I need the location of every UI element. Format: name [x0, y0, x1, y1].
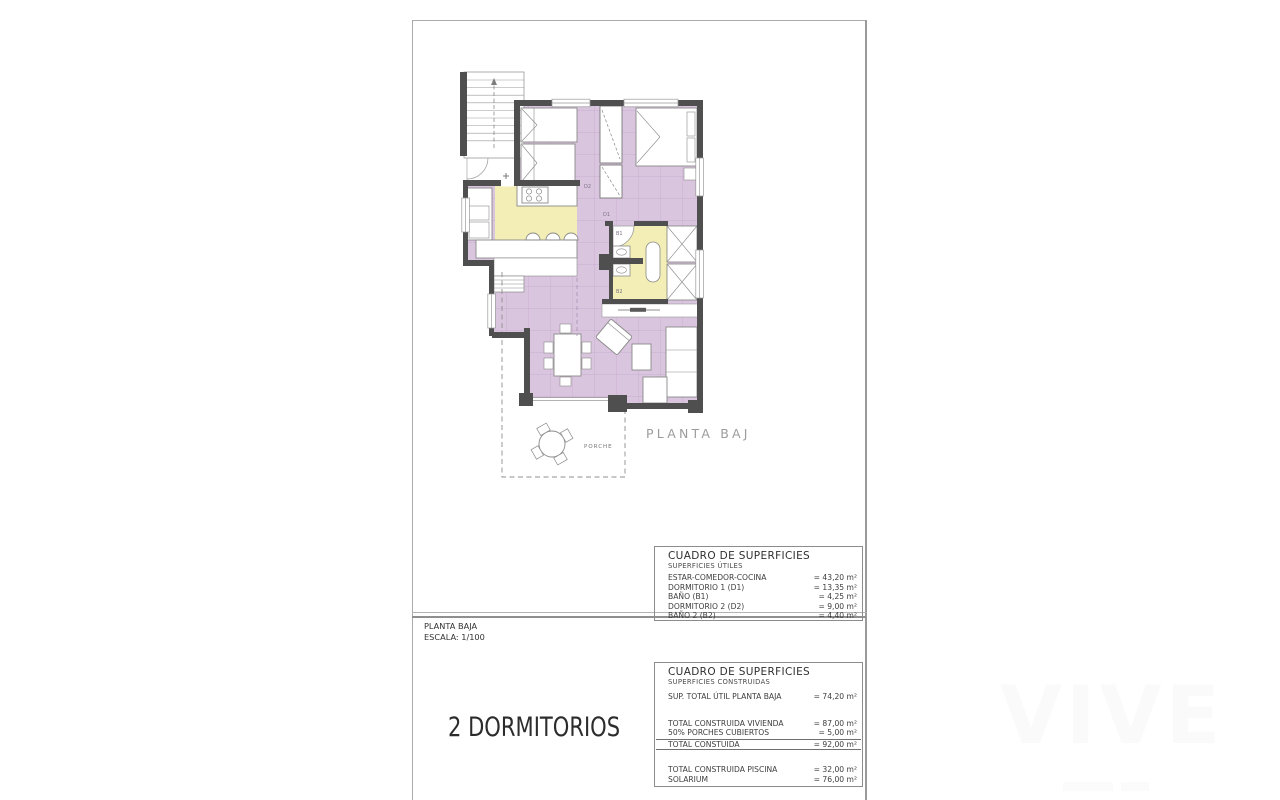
label-d1: D1: [603, 212, 610, 218]
sheet-border-left: [412, 20, 413, 800]
row-value: = 76,00 m²: [814, 775, 857, 785]
table-subtitle: SUPERFICIES CONSTRUIDAS: [668, 678, 857, 686]
row-value: = 9,00 m²: [818, 602, 857, 612]
watermark-logo: VIVE: [1000, 676, 1224, 756]
row-label: 50% PORCHES CUBIERTOS: [668, 728, 769, 738]
row-label: TOTAL CONSTUIDA: [668, 740, 740, 750]
sheet-border-right: [865, 20, 867, 800]
table-row: 50% PORCHES CUBIERTOS = 5,00 m²: [668, 728, 857, 738]
label-porch: PORCHE: [584, 444, 613, 450]
row-value: = 4,25 m²: [818, 592, 857, 602]
table-title: CUADRO DE SUPERFICIES: [668, 550, 857, 562]
porch-furniture: [531, 423, 573, 465]
table-title: CUADRO DE SUPERFICIES: [668, 666, 857, 678]
floor-plan: D2 D1 B1 B2 PORCHE PLANTA BAJA: [450, 60, 750, 490]
titleblock-scale: ESCALA: 1/100: [424, 632, 485, 642]
row-value: = 5,00 m²: [818, 728, 857, 738]
table-row: SOLARIUM = 76,00 m²: [668, 775, 857, 785]
table-row: SUP. TOTAL ÚTIL PLANTA BAJA = 74,20 m²: [668, 692, 857, 702]
table-row: DORMITORIO 2 (D2) = 9,00 m²: [668, 602, 857, 612]
table-row: TOTAL CONSTRUIDA PISCINA = 32,00 m²: [668, 765, 857, 775]
watermark-bar: [1121, 782, 1149, 791]
row-value: = 74,20 m²: [814, 692, 857, 702]
titleblock-plan-name: PLANTA BAJA: [424, 621, 477, 631]
row-label: SUP. TOTAL ÚTIL PLANTA BAJA: [668, 692, 781, 702]
table-row: DORMITORIO 1 (D1) = 13,35 m²: [668, 583, 857, 593]
row-value: = 87,00 m²: [814, 719, 857, 729]
table-subtitle: SUPERFICIES ÚTILES: [668, 562, 857, 570]
row-value: = 92,00 m²: [814, 740, 857, 750]
watermark-bar: [1063, 782, 1113, 791]
table-row: TOTAL CONSTRUIDA VIVIENDA = 87,00 m²: [668, 719, 857, 729]
row-value: = 4,40 m²: [818, 611, 857, 621]
row-label: TOTAL CONSTRUIDA PISCINA: [668, 765, 777, 775]
row-label: BAÑO (B1): [668, 592, 708, 602]
table-superficies-utiles: CUADRO DE SUPERFICIES SUPERFICIES ÚTILES…: [654, 546, 863, 621]
row-label: ESTAR-COMEDOR-COCINA: [668, 573, 766, 583]
row-value: = 43,20 m²: [814, 573, 857, 583]
table-superficies-construidas: CUADRO DE SUPERFICIES SUPERFICIES CONSTR…: [654, 662, 863, 787]
row-label: TOTAL CONSTRUIDA VIVIENDA: [668, 719, 784, 729]
entry-door-mark: [501, 173, 514, 187]
row-label: DORMITORIO 1 (D1): [668, 583, 744, 593]
plan-caption: PLANTA BAJA: [646, 426, 750, 441]
bedrooms-count-label: 2 DORMITORIOS: [448, 712, 620, 743]
table-total-row: TOTAL CONSTUIDA = 92,00 m²: [656, 739, 861, 751]
label-d2: D2: [584, 184, 591, 190]
label-b1: B1: [616, 231, 623, 237]
table-row: BAÑO (B1) = 4,25 m²: [668, 592, 857, 602]
label-b2: B2: [616, 289, 623, 295]
plan-sheet-page: { "plan": { "caption": "PLANTA BAJA", "l…: [0, 0, 1280, 800]
row-value: = 13,35 m²: [814, 583, 857, 593]
table-row: ESTAR-COMEDOR-COCINA = 43,20 m²: [668, 573, 857, 583]
sheet-border-top: [412, 20, 867, 21]
row-label: DORMITORIO 2 (D2): [668, 602, 744, 612]
row-label: SOLARIUM: [668, 775, 708, 785]
row-value: = 32,00 m²: [814, 765, 857, 775]
row-label: BAÑO 2 (B2): [668, 611, 716, 621]
table-row: BAÑO 2 (B2) = 4,40 m²: [668, 611, 857, 621]
